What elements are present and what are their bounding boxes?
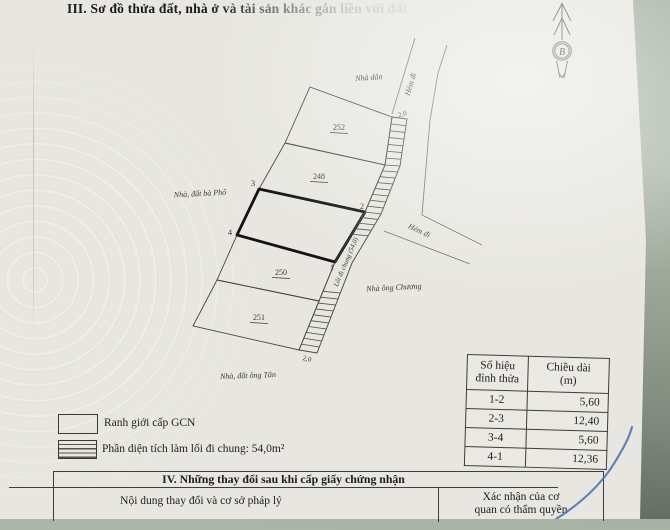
table-row: 4-1 12,36 [464, 446, 606, 469]
cell-length: 5,60 [526, 429, 607, 450]
label-corner-2: 2 [360, 201, 364, 211]
label-width-top: 2,0 [397, 109, 408, 120]
plot-248-underline [310, 182, 328, 183]
cell-length: 5,60 [527, 391, 608, 412]
label-plot-251: 251 [253, 313, 265, 322]
edge-length-table: Số hiệu đỉnh thửa Chiều dài (m) 1-2 5,60… [464, 354, 610, 470]
legend-boundary-label: Ranh giới cấp GCN [104, 417, 195, 429]
label-corner-1: 1 [330, 262, 334, 272]
north-arrow-icon: B [553, 4, 571, 79]
legend-common-path-symbol [58, 440, 97, 459]
label-hem-di-top: Hẻm đi [403, 72, 419, 98]
photo-of-land-certificate: { "page": { "section3_title": "III. Sơ đ… [0, 0, 670, 519]
section4-columns: Nội dung thay đổi và cơ sở pháp lý Xác n… [54, 488, 603, 522]
header-edge: Số hiệu đỉnh thửa [467, 355, 529, 392]
label-corner-4: 4 [228, 227, 233, 237]
label-plot-248: 248 [313, 172, 325, 181]
plot-250-underline [272, 278, 290, 279]
legend-common-path-label: Phần diện tích làm lối đi chung: 54,0m² [102, 443, 284, 455]
label-hem-di-right: Hẻm đi [406, 221, 432, 239]
label-nha-dan: Nhà dân [354, 72, 383, 83]
section4-left-header: Nội dung thay đổi và cơ sở pháp lý [54, 488, 439, 522]
diagram-labels: Nhà dân Hẻm đi 2,0 252 248 3 2 4 1 250 2… [173, 72, 432, 381]
common-path-strip [299, 117, 407, 353]
table-header-row: Số hiệu đỉnh thửa Chiều dài (m) [467, 355, 610, 394]
cell-edge: 3-4 [465, 427, 527, 448]
cell-edge: 2-3 [465, 408, 527, 429]
label-nha-dat-ba-pho: Nhà, đất bà Phố [173, 188, 228, 200]
label-corner-3: 3 [251, 178, 255, 188]
legend-boundary-symbol [58, 414, 98, 434]
label-plot-252: 252 [333, 123, 345, 132]
section4-right-header: Xác nhận của cơ quan có thẩm quyền [439, 488, 603, 522]
plot-252-underline [330, 133, 348, 134]
label-nha-ong-chuong: Nhà ông Chương [365, 282, 422, 294]
header-edge-line2: đỉnh thửa [475, 372, 519, 385]
section3-title: III. Sơ đồ thửa đất, nhà ở và tài sản kh… [67, 1, 407, 17]
header-length: Chiều dài (m) [527, 356, 609, 393]
section4-right-line1: Xác nhận của cơ [483, 491, 560, 503]
alley-lines [384, 38, 482, 264]
north-label: B [559, 47, 565, 58]
cell-edge: 1-2 [466, 390, 528, 411]
cell-edge: 4-1 [464, 446, 526, 467]
cell-length: 12,36 [525, 448, 606, 469]
cell-length: 12,40 [526, 410, 607, 431]
parcel-outlines [193, 87, 392, 350]
header-edge-line1: Số hiệu [480, 359, 515, 372]
label-plot-250: 250 [275, 268, 287, 277]
plot-251-underline [250, 323, 268, 324]
section4-title: IV. Những thay đổi sau khi cấp giấy chứn… [9, 472, 558, 488]
certified-parcel-outline [237, 189, 365, 262]
label-nha-dat-ong-tan: Nhà, đất ông Tân [219, 370, 276, 381]
strip-hatching [301, 124, 406, 347]
section4-left-header-text: Nội dung thay đổi và cơ sở pháp lý [120, 495, 282, 507]
header-length-line2: (m) [560, 375, 577, 387]
section4-box: IV. Những thay đổi sau khi cấp giấy chứn… [53, 471, 604, 521]
header-length-line1: Chiều dài [546, 361, 591, 374]
section4-right-line2: quan có thẩm quyền [475, 504, 568, 516]
label-width-bottom: 2,0 [302, 354, 313, 364]
